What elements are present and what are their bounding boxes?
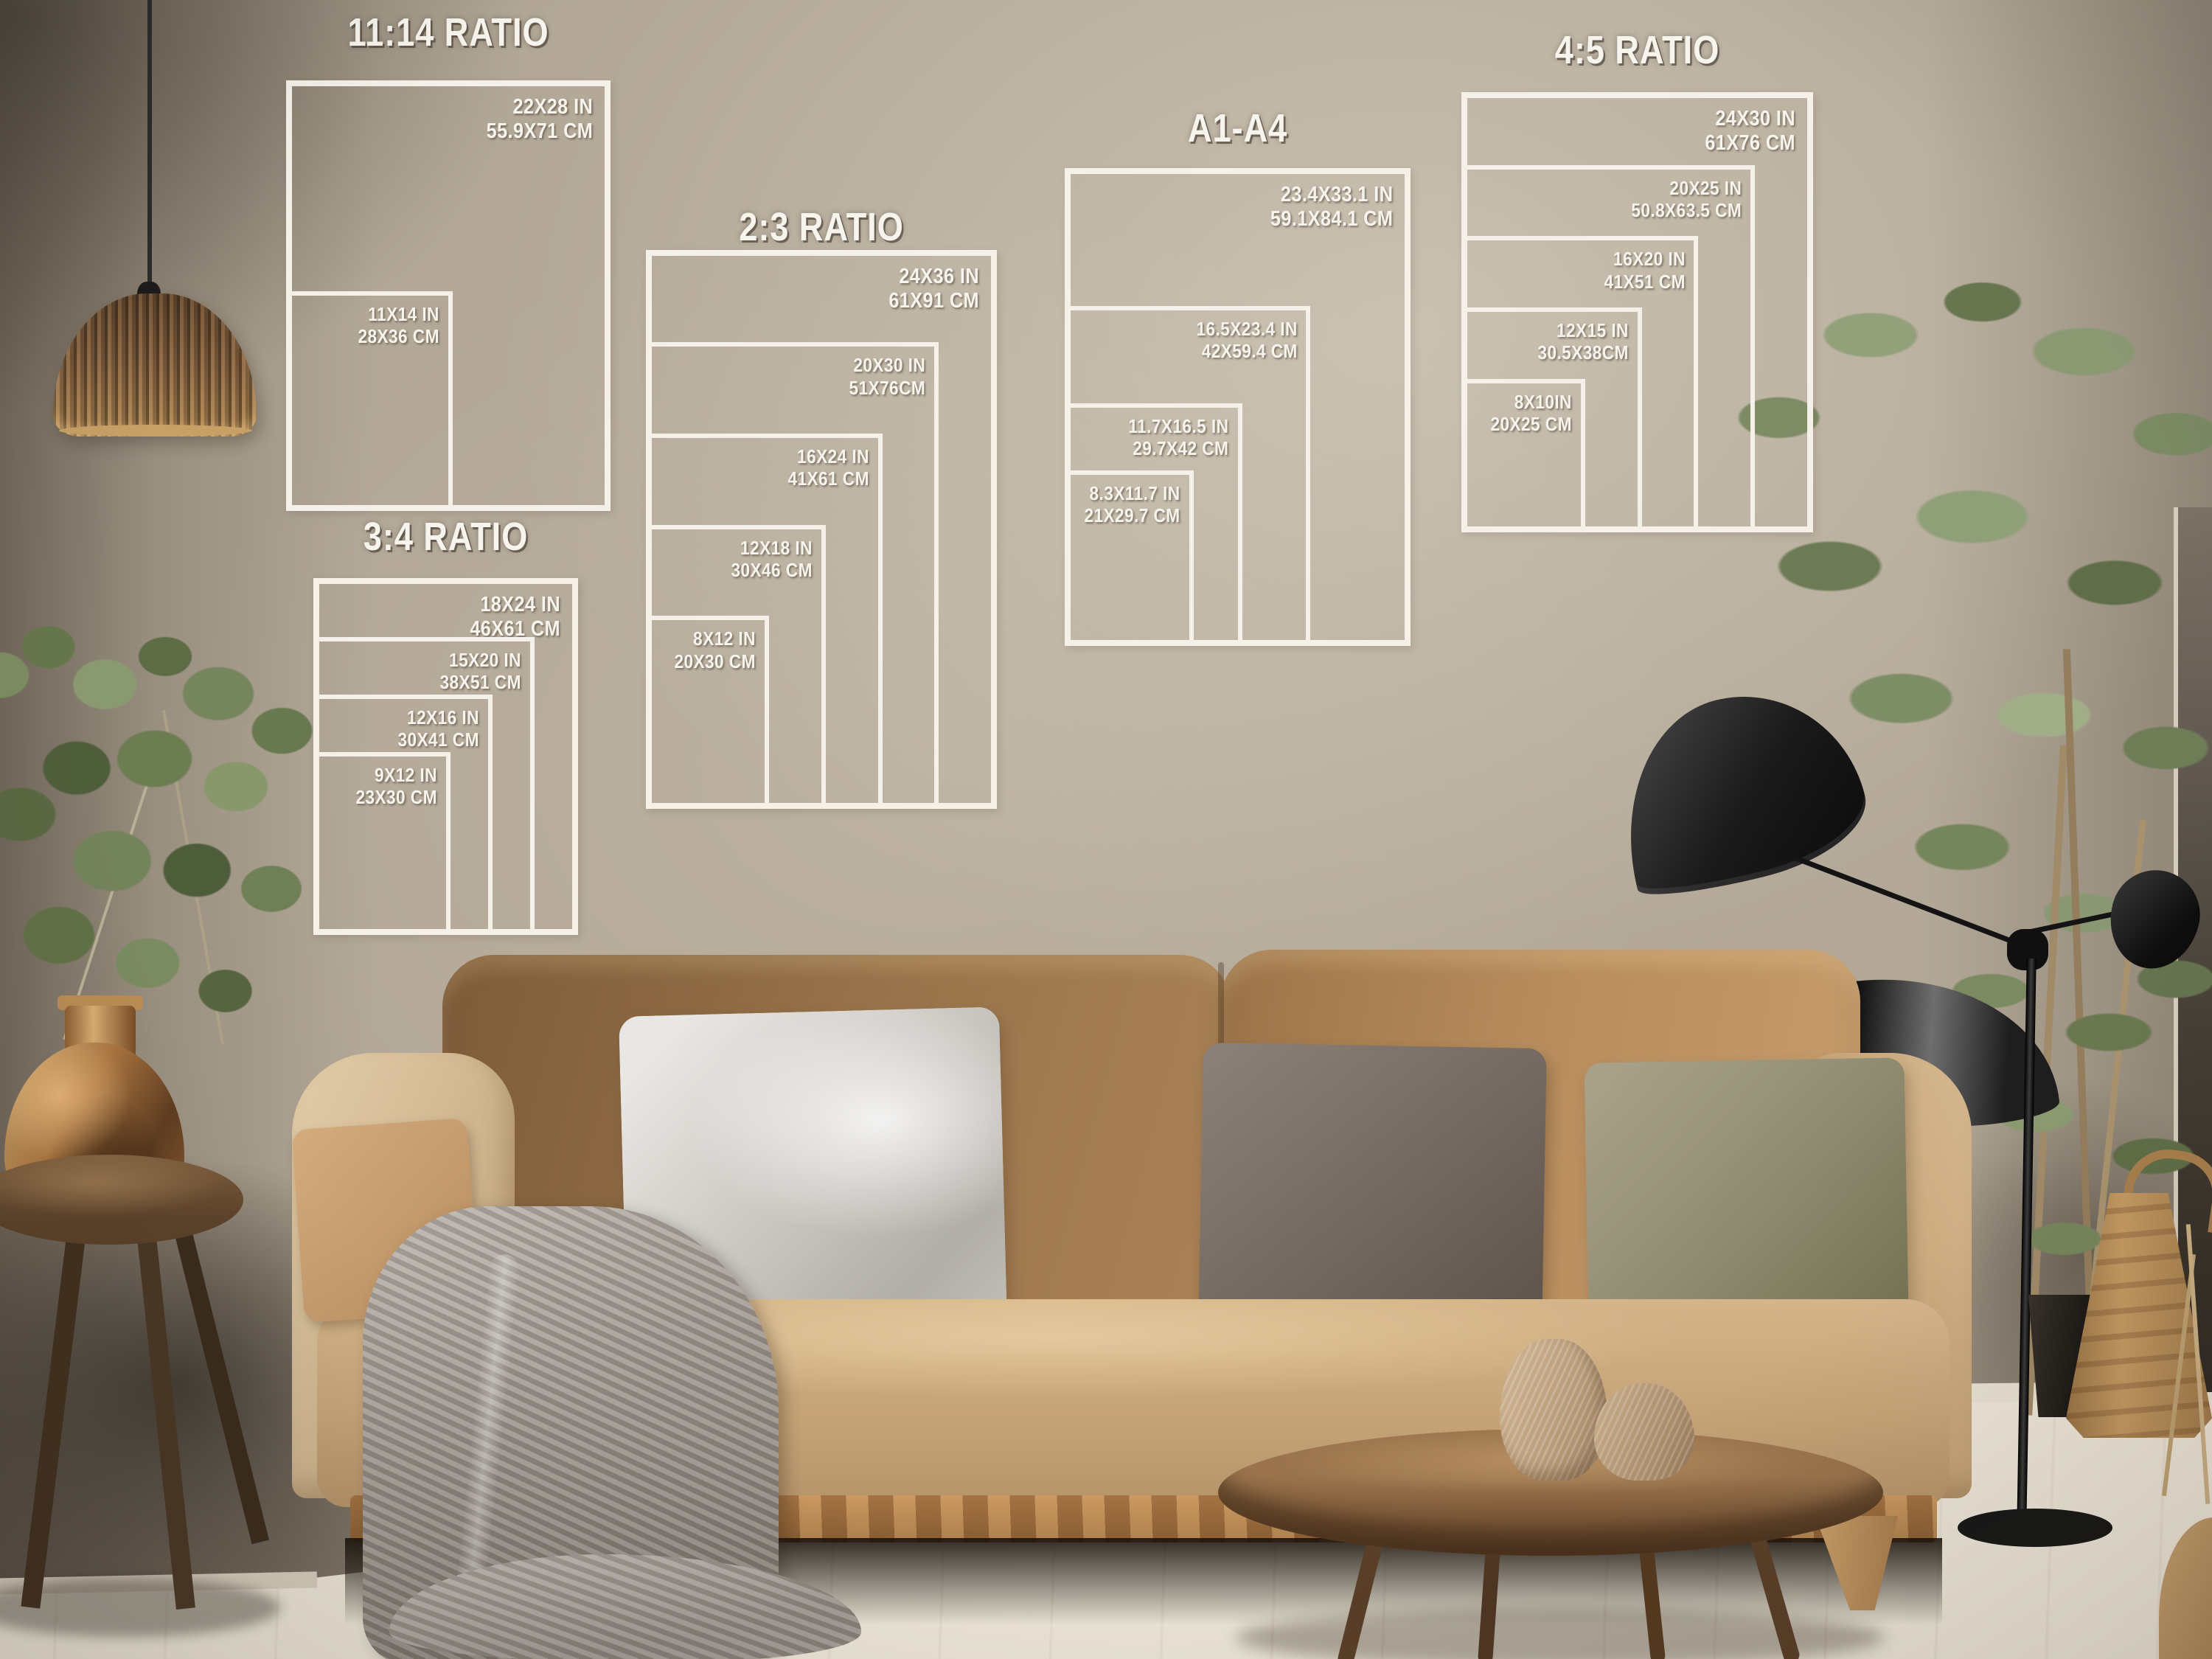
size-cm: 41X61 CM bbox=[787, 467, 869, 490]
blanket-fold-highlight bbox=[453, 1253, 521, 1608]
chart-title: 4:5 RATIO bbox=[1489, 29, 1785, 72]
size-box: 11X14 IN28X36 CM bbox=[292, 291, 453, 505]
blanket-drape bbox=[363, 1206, 779, 1659]
size-cm: 20X30 CM bbox=[675, 650, 756, 672]
size-cm: 38X51 CM bbox=[439, 671, 521, 693]
chart-title: 3:4 RATIO bbox=[335, 516, 557, 558]
size-cm: 30X41 CM bbox=[397, 728, 479, 751]
chart-4-5-ratio: 4:5 RATIO 24X30 IN61X76 CM20X25 IN50.8X6… bbox=[1461, 29, 1813, 532]
size-inches: 11X14 IN bbox=[358, 303, 439, 325]
size-cm: 30.5X38CM bbox=[1537, 341, 1628, 364]
pillow-silver bbox=[619, 1006, 1008, 1360]
floor-lamp-arm bbox=[2023, 907, 2136, 936]
size-label: 9X12 IN23X30 CM bbox=[355, 764, 437, 808]
copper-vase-neck bbox=[65, 1006, 136, 1059]
size-cm: 29.7X42 CM bbox=[1128, 437, 1228, 459]
size-inches: 20X25 IN bbox=[1631, 177, 1742, 199]
dried-grass-stem bbox=[2162, 1254, 2196, 1496]
plant-trunk bbox=[2025, 745, 2067, 1415]
coffee-table-top bbox=[1218, 1429, 1883, 1556]
size-label: 8X10IN20X25 CM bbox=[1490, 391, 1571, 435]
sofa-seat-cushion bbox=[317, 1299, 1950, 1507]
size-cm: 23X30 CM bbox=[355, 786, 437, 808]
floor-lamp-shade-large bbox=[1598, 671, 1878, 907]
size-inches: 8X10IN bbox=[1490, 391, 1571, 413]
blanket-floor-spill bbox=[389, 1554, 861, 1659]
size-inches: 20X30 IN bbox=[849, 354, 926, 376]
baseboard-left bbox=[0, 1571, 317, 1594]
plant-trunk bbox=[2078, 820, 2146, 1408]
size-label: 18X24 IN46X61 CM bbox=[470, 593, 560, 642]
sofa-armrest-left bbox=[292, 1053, 515, 1498]
chart-area: 18X24 IN46X61 CM15X20 IN38X51 CM12X16 IN… bbox=[313, 578, 578, 935]
size-label: 20X25 IN50.8X63.5 CM bbox=[1631, 177, 1742, 221]
pillow-olive bbox=[1585, 1057, 1910, 1358]
size-label: 16.5X23.4 IN42X59.4 CM bbox=[1196, 318, 1297, 362]
pendant-rim bbox=[59, 425, 252, 437]
coffee-table-leg bbox=[1336, 1528, 1385, 1659]
size-inches: 16.5X23.4 IN bbox=[1196, 318, 1297, 340]
pendant-cord bbox=[147, 0, 152, 299]
size-inches: 16X20 IN bbox=[1604, 248, 1685, 270]
chart-title: 11:14 RATIO bbox=[312, 12, 585, 54]
pillow-gray bbox=[1197, 1043, 1547, 1373]
size-inches: 22X28 IN bbox=[486, 95, 593, 120]
size-label: 24X36 IN61X91 CM bbox=[888, 265, 979, 314]
size-inches: 9X12 IN bbox=[355, 764, 437, 786]
eucalyptus-stem bbox=[162, 710, 224, 1045]
chart-area: 22X28 IN55.9X71 CM11X14 IN28X36 CM bbox=[286, 80, 611, 511]
stool-leg bbox=[173, 1225, 269, 1545]
size-box: 9X12 IN23X30 CM bbox=[319, 752, 451, 929]
size-cm: 50.8X63.5 CM bbox=[1631, 199, 1742, 221]
copper-vase-body bbox=[4, 1043, 184, 1230]
stool-leg bbox=[136, 1230, 195, 1610]
eucalyptus-stem bbox=[63, 745, 161, 1040]
floor-lamp-shade-cup bbox=[2100, 860, 2210, 978]
size-cm: 28X36 CM bbox=[358, 325, 439, 347]
size-label: 8X12 IN20X30 CM bbox=[675, 627, 756, 672]
size-label: 15X20 IN38X51 CM bbox=[439, 649, 521, 693]
size-inches: 24X36 IN bbox=[888, 265, 979, 290]
size-label: 12X15 IN30.5X38CM bbox=[1537, 319, 1628, 364]
sofa-backrest-left bbox=[442, 955, 1231, 1371]
size-cm: 21X29.7 CM bbox=[1085, 504, 1180, 526]
size-label: 20X30 IN51X76CM bbox=[849, 354, 926, 398]
size-inches: 12X16 IN bbox=[397, 706, 479, 728]
plant-trunk bbox=[2063, 649, 2097, 1416]
size-label: 11X14 IN28X36 CM bbox=[358, 303, 439, 347]
floor-lamp-joint bbox=[2007, 929, 2048, 970]
size-inches: 16X24 IN bbox=[787, 445, 869, 467]
pendant-lamp-shade bbox=[53, 293, 257, 437]
size-inches: 8.3X11.7 IN bbox=[1085, 482, 1180, 504]
size-label: 16X20 IN41X51 CM bbox=[1604, 248, 1685, 292]
table-vase-tall bbox=[1500, 1339, 1607, 1481]
wall-shadow-right bbox=[1873, 1018, 2212, 1489]
stool-leg bbox=[21, 1225, 86, 1608]
coffee-table-shadow bbox=[1236, 1609, 1885, 1659]
size-cm: 59.1X84.1 CM bbox=[1270, 207, 1393, 232]
stool-top bbox=[0, 1155, 243, 1245]
corner-pot bbox=[2159, 1517, 2212, 1659]
size-box: 8.3X11.7 IN21X29.7 CM bbox=[1071, 470, 1194, 639]
sofa-cushion-seam bbox=[1218, 962, 1224, 1360]
mirror-panel bbox=[2174, 507, 2212, 1392]
sofa-armrest-right bbox=[1775, 1053, 1972, 1498]
sofa-leg-right bbox=[1815, 1516, 1898, 1610]
size-inches: 23.4X33.1 IN bbox=[1270, 183, 1393, 208]
pendant-socket bbox=[137, 282, 161, 313]
size-cm: 61X91 CM bbox=[888, 289, 979, 314]
size-label: 12X16 IN30X41 CM bbox=[397, 706, 479, 751]
sofa-leg-left bbox=[420, 1540, 467, 1604]
size-inches: 11.7X16.5 IN bbox=[1128, 415, 1228, 437]
size-box: 8X10IN20X25 CM bbox=[1467, 379, 1585, 526]
size-inches: 18X24 IN bbox=[470, 593, 560, 618]
floor-lamp-pole bbox=[2017, 959, 2036, 1526]
baseboard-right bbox=[1746, 1381, 2212, 1405]
chart-a1-a4: A1-A4 23.4X33.1 IN59.1X84.1 CM16.5X23.4 … bbox=[1065, 108, 1411, 646]
wall-shadow-left bbox=[0, 1062, 546, 1659]
tall-plant-lower-fronds bbox=[1932, 929, 2212, 1342]
jute-basket bbox=[2066, 1193, 2212, 1438]
size-label: 16X24 IN41X61 CM bbox=[787, 445, 869, 490]
size-inches: 24X30 IN bbox=[1705, 107, 1795, 132]
size-cm: 61X76 CM bbox=[1705, 131, 1795, 156]
floor-lamp-arm bbox=[1775, 848, 2028, 949]
basket-handle bbox=[2120, 1144, 2212, 1233]
dried-grass-stem bbox=[2186, 1224, 2210, 1503]
size-label: 24X30 IN61X76 CM bbox=[1705, 107, 1795, 156]
size-label: 8.3X11.7 IN21X29.7 CM bbox=[1085, 482, 1180, 526]
chart-area: 23.4X33.1 IN59.1X84.1 CM16.5X23.4 IN42X5… bbox=[1065, 168, 1411, 646]
pillow-tan-armrest bbox=[291, 1118, 480, 1323]
chart-title: 2:3 RATIO bbox=[674, 206, 969, 248]
coffee-table-leg bbox=[1478, 1535, 1501, 1659]
chart-2-3-ratio: 2:3 RATIO 24X36 IN61X91 CM20X30 IN51X76C… bbox=[646, 206, 997, 809]
chart-3-4-ratio: 3:4 RATIO 18X24 IN46X61 CM15X20 IN38X51 … bbox=[313, 516, 578, 935]
living-room-size-chart-mockup: 11:14 RATIO 22X28 IN55.9X71 CM11X14 IN28… bbox=[0, 0, 2212, 1659]
table-vase-short bbox=[1594, 1383, 1694, 1481]
copper-vase-rim bbox=[58, 995, 143, 1010]
coffee-table-leg bbox=[1638, 1531, 1666, 1659]
eucalyptus-foliage bbox=[0, 619, 324, 1084]
size-label: 11.7X16.5 IN29.7X42 CM bbox=[1128, 415, 1228, 459]
sofa-under-shadow bbox=[345, 1538, 1942, 1625]
size-inches: 12X18 IN bbox=[731, 537, 813, 559]
sofa-backrest-right bbox=[1220, 950, 1860, 1368]
chart-area: 24X30 IN61X76 CM20X25 IN50.8X63.5 CM16X2… bbox=[1461, 92, 1813, 532]
chart-area: 24X36 IN61X91 CM20X30 IN51X76CM16X24 IN4… bbox=[646, 250, 997, 809]
floor-lamp-shade-ribbon bbox=[1810, 961, 2061, 1141]
size-cm: 41X51 CM bbox=[1604, 271, 1685, 293]
chart-11-14-ratio: 11:14 RATIO 22X28 IN55.9X71 CM11X14 IN28… bbox=[286, 12, 611, 511]
size-cm: 20X25 CM bbox=[1490, 413, 1571, 435]
plant-pot-black bbox=[2023, 1295, 2107, 1417]
floor-lamp-base bbox=[1958, 1509, 2112, 1547]
size-cm: 30X46 CM bbox=[731, 559, 813, 581]
size-cm: 55.9X71 CM bbox=[486, 119, 593, 145]
size-inches: 8X12 IN bbox=[675, 627, 756, 650]
sofa-wood-rail bbox=[350, 1495, 1937, 1543]
size-box: 8X12 IN20X30 CM bbox=[652, 616, 769, 802]
size-label: 22X28 IN55.9X71 CM bbox=[486, 95, 593, 145]
size-label: 12X18 IN30X46 CM bbox=[731, 537, 813, 581]
size-inches: 12X15 IN bbox=[1537, 319, 1628, 341]
size-inches: 15X20 IN bbox=[439, 649, 521, 671]
stool-shadow bbox=[0, 1578, 280, 1637]
size-label: 23.4X33.1 IN59.1X84.1 CM bbox=[1270, 183, 1393, 232]
size-cm: 42X59.4 CM bbox=[1196, 340, 1297, 362]
chart-title: A1-A4 bbox=[1093, 108, 1383, 150]
size-cm: 51X76CM bbox=[849, 377, 926, 399]
coffee-table-leg bbox=[1747, 1526, 1801, 1659]
